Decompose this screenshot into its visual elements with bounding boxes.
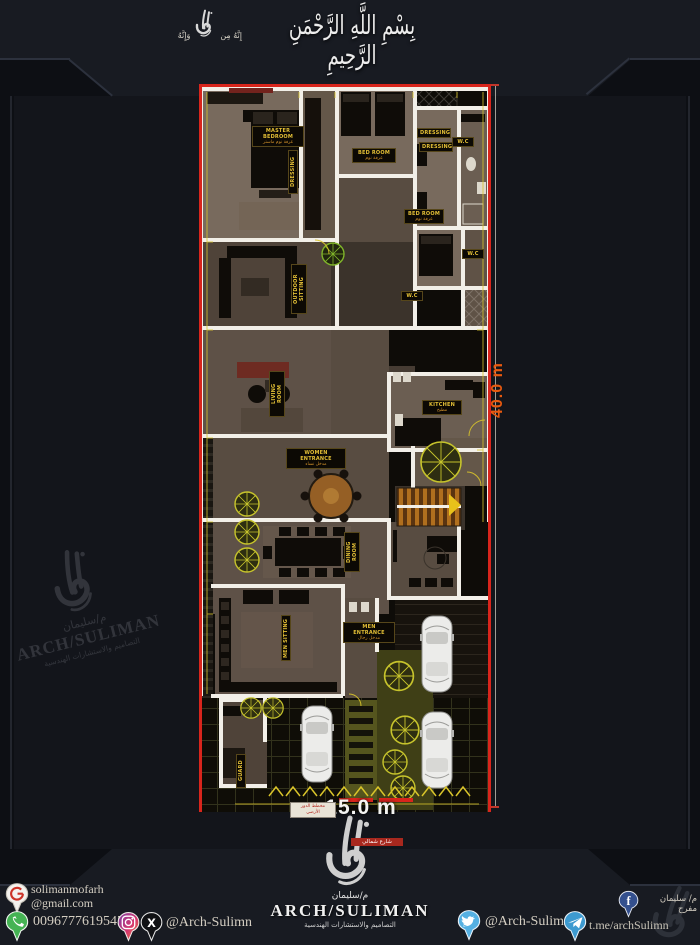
brand-name-ar: م/سليمان	[252, 891, 448, 901]
room-label-dining-room: DINING ROOM	[344, 532, 360, 572]
room-label-men-entrance: MEN ENTRANCE مدخل رجال	[343, 622, 395, 643]
room-label-bedroom-right: BED ROOM غرفة نوم	[404, 209, 444, 224]
label-ar: غرفة نوم	[407, 217, 441, 222]
brand-block: م/سليمان ARCH/SULIMAN التصاميم والاستشار…	[252, 814, 448, 929]
dimension-line-right	[495, 84, 496, 808]
x-glyph: X	[147, 916, 156, 930]
label-en: DRESSING	[422, 144, 450, 150]
dimension-tick-bottom	[491, 806, 499, 808]
room-label-living-room: LIVING ROOM	[269, 371, 285, 417]
label-en: GUARD	[238, 757, 244, 785]
handle-left: @Arch-Sulimn	[166, 915, 252, 931]
telegram-icon	[562, 910, 588, 942]
label-en: W.C	[455, 139, 471, 145]
height-dimension-label: 40.0 m	[489, 400, 507, 418]
seal-text-left: إِنَّهُ مِن	[220, 31, 242, 40]
plan-title-line2: الأرضي	[291, 810, 335, 816]
room-label-wc-2: W.C	[462, 249, 484, 259]
frame-rail-left	[10, 96, 12, 849]
room-label-guard: GUARD	[236, 754, 246, 788]
room-label-dressing-corridor: DRESSING	[288, 150, 298, 194]
label-ar: غرفة نوم ماستر	[255, 140, 301, 145]
room-label-men-sitting: MEN SITTING	[281, 615, 291, 661]
frame-line	[630, 58, 700, 60]
room-label-master-bedroom: MASTER BEDROOM غرفة نوم ماستر	[252, 126, 304, 147]
plan-title-badge: مخطط الدور الأرضي	[290, 802, 336, 818]
calligraphy-logo-icon	[193, 6, 217, 40]
facebook-icon: f	[617, 890, 640, 918]
x-twitter-icon: X	[139, 911, 164, 942]
label-en: W.C	[465, 251, 481, 257]
brand-name-en: ARCH/SULIMAN	[252, 901, 448, 921]
twitter-bird-icon	[456, 909, 482, 941]
label-en: MEN SITTING	[283, 618, 289, 658]
room-label-dressing-1: DRESSING	[417, 128, 451, 138]
room-label-women-entrance: WOMEN ENTRANCE مدخل نساء	[286, 448, 346, 469]
frame-rail-right	[688, 96, 690, 849]
room-label-wc-3: W.C	[401, 291, 423, 301]
room-label-wc-1: W.C	[452, 137, 474, 147]
label-ar: مطبخ	[425, 408, 459, 413]
handle-right: @Arch-Sulimn	[485, 914, 571, 930]
quran-seal: إِنَّهُ مِن وَإِنَّهُ	[122, 6, 242, 40]
bismillah-calligraphy: بِسْمِ اللَّهِ الرَّحْمَنِ الرَّحِيمِ	[262, 11, 442, 72]
brand-subtitle: التصاميم والاستشارات الهندسية	[252, 921, 448, 929]
label-ar: مدخل نساء	[289, 462, 343, 467]
email-user: solimanmofarh	[31, 882, 104, 897]
poster: إِنَّهُ مِن وَإِنَّهُ بِسْمِ اللَّهِ الر…	[0, 0, 700, 945]
label-ar: مدخل رجال	[346, 636, 392, 641]
label-en: OUTDOOR SITTING	[293, 267, 305, 311]
room-label-kitchen: KITCHEN مطبخ	[422, 400, 462, 415]
room-label-bedroom-top: BED ROOM غرفة نوم	[352, 148, 396, 163]
label-en: MEN ENTRANCE	[346, 624, 392, 636]
label-en: DRESSING	[290, 153, 296, 191]
telegram-link: t.me/archSulimn	[589, 918, 669, 933]
label-en: DRESSING	[420, 130, 448, 136]
label-en: MASTER BEDROOM	[255, 128, 301, 140]
facebook-name: م/ سليمان مفرح	[641, 894, 697, 914]
room-label-outdoor-sitting: OUTDOOR SITTING	[291, 264, 307, 314]
frame-line	[0, 58, 70, 60]
email-domain: @gmail.com	[31, 896, 93, 911]
label-en: DINING ROOM	[346, 535, 358, 569]
street-label: شارع شمالي	[351, 838, 403, 846]
dimension-tick-top	[491, 84, 499, 86]
label-en: WOMEN ENTRANCE	[289, 450, 343, 462]
instagram-icon	[116, 911, 141, 942]
seal-text-right: وَإِنَّهُ	[178, 31, 191, 40]
watermark-logo-icon	[39, 542, 109, 618]
label-ar: غرفة نوم	[355, 156, 393, 161]
room-label-dressing-2: DRESSING	[419, 142, 453, 152]
label-en: LIVING ROOM	[271, 374, 283, 414]
brand-logo-icon	[318, 814, 382, 886]
label-en: W.C	[404, 293, 420, 299]
whatsapp-icon	[4, 910, 30, 942]
